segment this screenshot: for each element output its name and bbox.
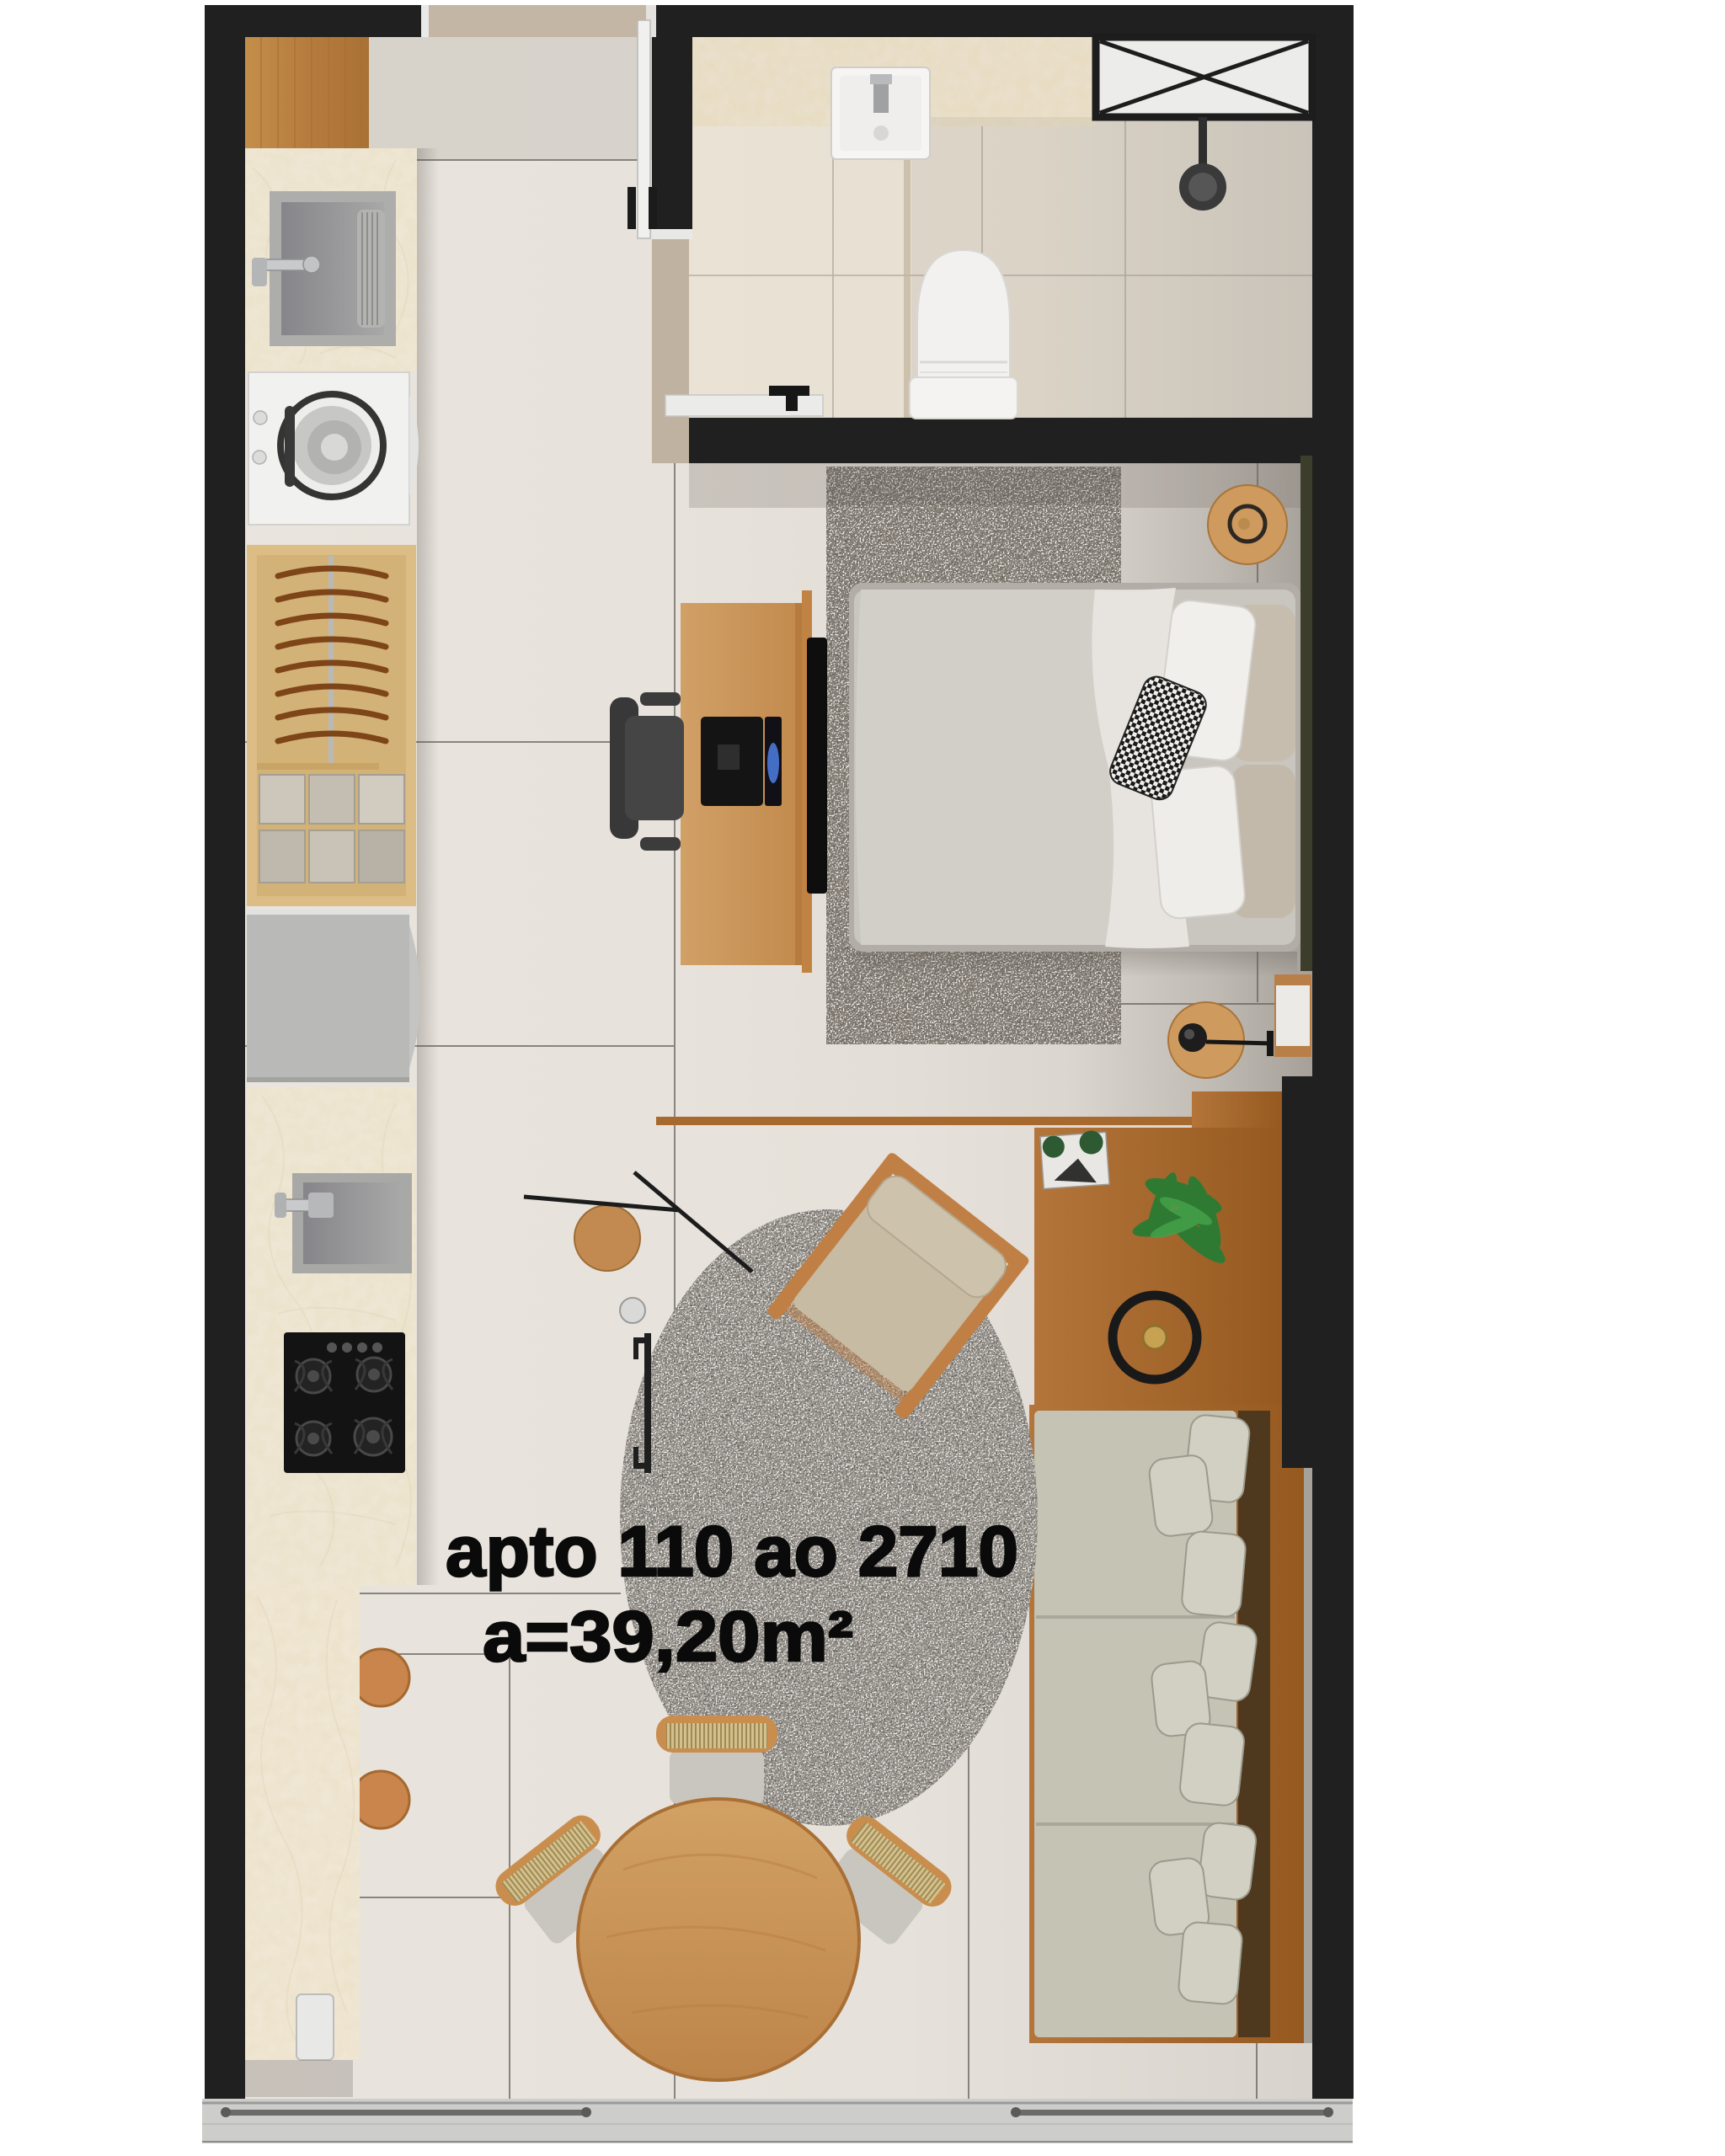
svg-text:a=39,20m²: a=39,20m² [483,1597,853,1676]
svg-text:apto 110 ao 2710: apto 110 ao 2710 [446,1512,1018,1591]
